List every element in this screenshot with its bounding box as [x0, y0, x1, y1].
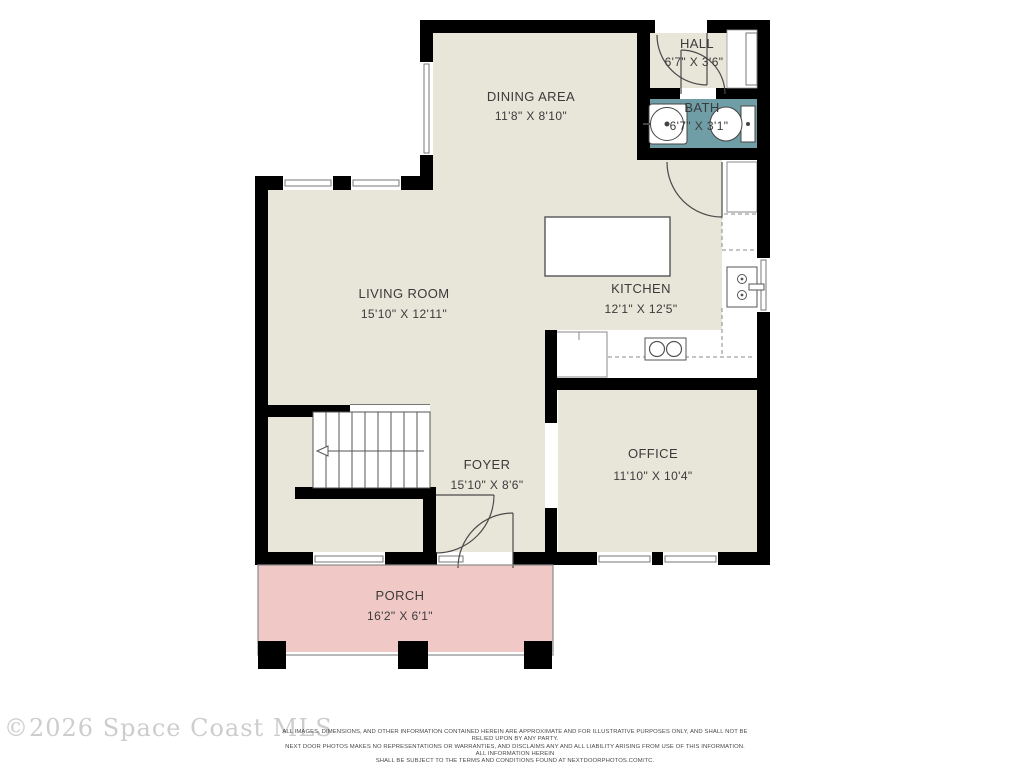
floor-plan-drawing: DINING AREA 11'8" X 8'10" HALL 6'7" X 3'…: [0, 0, 1024, 768]
porch-label: PORCH: [376, 588, 425, 603]
office-dims: 11'10" X 10'4": [613, 469, 692, 483]
front-door-opening: [465, 552, 513, 565]
kitchen-island: [545, 217, 670, 276]
bath-dims: 6'7" X 3'1": [670, 119, 729, 133]
window-office-bottom-2: [663, 552, 718, 565]
hall-entry-opening: [655, 20, 707, 33]
wall-kitchen-office-divider: [545, 378, 770, 390]
wall-kitchen-left-upper: [545, 330, 557, 423]
wall-top: [420, 20, 770, 33]
wall-kitchen-left-lower: [545, 508, 557, 565]
kitchen-sink: [645, 338, 686, 360]
kitchen-floor-upper: [637, 160, 722, 190]
window-living-top-2: [351, 176, 401, 190]
stair-run: [313, 412, 430, 488]
disclaimer-line-1: ALL IMAGES, DIMENSIONS, AND OTHER INFORM…: [280, 729, 750, 744]
wall-bath-bottom: [637, 148, 770, 160]
foyer-dims: 15'10" X 8'6": [450, 478, 523, 492]
hall-label: HALL: [680, 36, 714, 51]
window-dining-left: [420, 62, 433, 155]
living-label: LIVING ROOM: [358, 286, 449, 301]
wall-stair-bottom: [295, 487, 436, 499]
wall-left: [255, 176, 268, 565]
kitchen-dims: 12'1" X 12'5": [604, 302, 677, 316]
window-foyer-bottom: [437, 552, 465, 565]
kitchen-label: KITCHEN: [611, 281, 671, 296]
porch-dims: 16'2" X 6'1": [367, 609, 433, 623]
living-dims: 15'10" X 12'11": [361, 307, 447, 321]
porch-post-right: [524, 641, 552, 669]
window-living-top-1: [283, 176, 333, 190]
bath-door-opening: [680, 88, 716, 99]
dining-label: DINING AREA: [487, 89, 575, 104]
floor-plan-page: DINING AREA 11'8" X 8'10" HALL 6'7" X 3'…: [0, 0, 1024, 768]
pantry-closet: [727, 162, 757, 212]
bath-label: BATH: [684, 100, 719, 115]
porch-post-middle: [398, 641, 428, 669]
disclaimer-line-2: NEXT DOOR PHOTOS MAKES NO REPRESENTATION…: [280, 744, 750, 759]
porch-post-left: [258, 641, 286, 669]
disclaimer-line-3: SHALL BE SUBJECT TO THE TERMS AND CONDIT…: [280, 758, 750, 765]
wall-foyer-stub: [423, 487, 436, 565]
foyer-label: FOYER: [464, 457, 511, 472]
window-living-bottom: [313, 552, 385, 565]
hall-dims: 6'7" X 3'6": [665, 55, 724, 69]
window-office-bottom-1: [597, 552, 652, 565]
disclaimer-text: ALL IMAGES, DIMENSIONS, AND OTHER INFORM…: [280, 729, 750, 765]
office-label: OFFICE: [628, 446, 678, 461]
dining-dims: 11'8" X 8'10": [495, 109, 567, 123]
stairs: [313, 404, 430, 488]
window-hall-recess: [727, 30, 757, 88]
